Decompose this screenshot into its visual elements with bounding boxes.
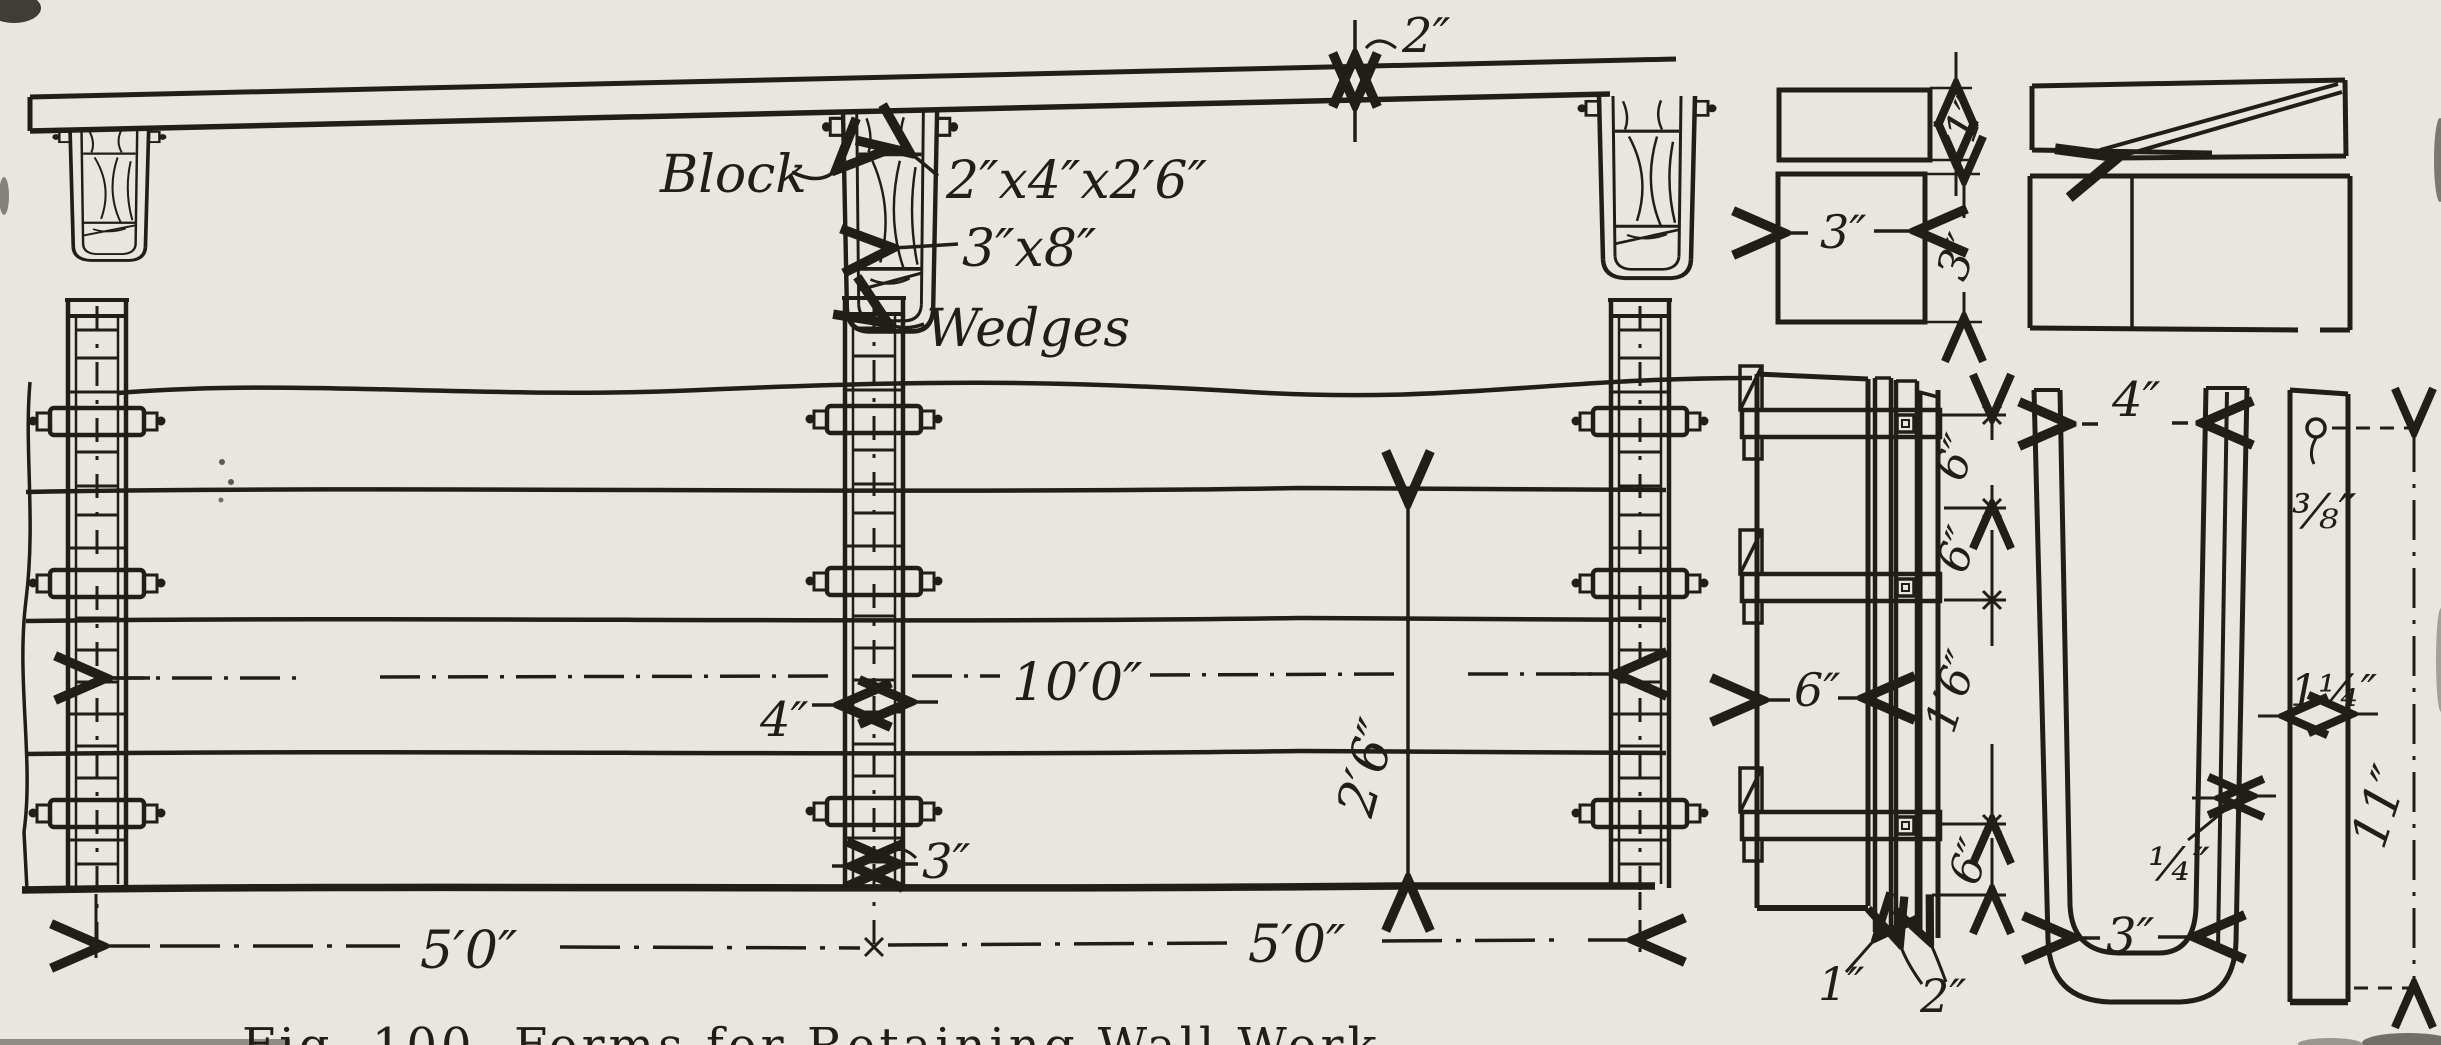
dim-wedge-width-label: 3″ (1820, 205, 1866, 259)
dim-depth-label: 2′6″ (1326, 712, 1410, 823)
dim-bays (96, 892, 1640, 958)
ground-line (22, 886, 1655, 890)
wedge-end-view (1779, 90, 1930, 160)
wale-top-edge (30, 59, 1676, 97)
dim-plank-thickness-label: 2″ (1401, 8, 1451, 64)
wall-elevation: 10′0″ 4″ 3″ 2′6″ 5′0″ 5′0 (22, 298, 1752, 981)
chain-middle-label: 1′6″ (1915, 644, 1989, 739)
dim-wedge-thickness-label: 1″ (1935, 89, 1998, 149)
wale-size-label: 3″x8″ (962, 219, 1097, 279)
dim-bay-left-label: 5′0″ (420, 921, 518, 981)
sheeting-board (1757, 374, 1868, 908)
drawing-canvas: 2″ Block 2″x4″x2′6″ 3″x8″ Wedges 10′0″ (0, 0, 2441, 1045)
dim-clamp-inside-label: 3″ (2106, 908, 2155, 964)
figure-caption: Fig. 100. Forms for Retaining Wall Work (242, 1018, 1381, 1045)
hanger-block-right (1578, 96, 1717, 278)
block-size-label: 2″x4″x2′6″ (945, 151, 1208, 211)
strip-two-label: 2″ (1919, 969, 1966, 1023)
dim-plank-thickness (1355, 20, 1396, 142)
wedges-label: Wedges (926, 299, 1130, 359)
blocks-side-view (2030, 176, 2350, 330)
dim-panel-board-label: 6″ (1794, 663, 1840, 717)
flat-bar-detail: ⅜″ 1¼″ 11″ (2258, 390, 2420, 1002)
scanned-engineering-drawing: 2″ Block 2″x4″x2′6″ 3″x8″ Wedges 10′0″ (0, 0, 2441, 1045)
dim-hole-label: ⅜″ (2292, 484, 2357, 540)
dim-liner (2188, 796, 2276, 840)
panel-side-view: 6″ 1″ 2″ 6″ 6″ 1′6″ 6″ (1740, 366, 2006, 1023)
dim-wedge-height-label: 3″ (1927, 227, 1990, 287)
dim-post-span-label: 10′0″ (1012, 653, 1143, 713)
grade-line (118, 378, 1752, 395)
wedge-pair-side-view (2032, 80, 2346, 158)
form-post-right (1572, 300, 1709, 960)
hole-leader (2311, 438, 2316, 464)
cleat-bolts (1897, 415, 1914, 834)
bolt-hole (2307, 419, 2325, 437)
dim-liner-label: ¼″ (2148, 837, 2210, 891)
dim-bar-length-label: 11″ (2340, 758, 2421, 855)
u-clamp-detail: 4″ ¼″ 3″ (2034, 372, 2276, 1002)
block-label: Block (659, 145, 807, 205)
strip-one-label: 1″ (1818, 957, 1864, 1011)
dim-bay-right-label: 5′0″ (1248, 915, 1346, 975)
dim-post-width-label: 4″ (759, 692, 809, 748)
dim-post-foot-label: 3″ (922, 834, 971, 890)
wale-bottom-edge (30, 94, 1610, 131)
panel-cleats (1742, 410, 1940, 839)
dim-bar-width-label: 1¼″ (2290, 666, 2378, 717)
dim-clamp-opening-label: 4″ (2111, 372, 2161, 428)
hanger-block-left (52, 128, 166, 260)
form-post-left (29, 300, 166, 960)
wedge-details: 1″ 3″ 3″ (1778, 52, 2350, 330)
